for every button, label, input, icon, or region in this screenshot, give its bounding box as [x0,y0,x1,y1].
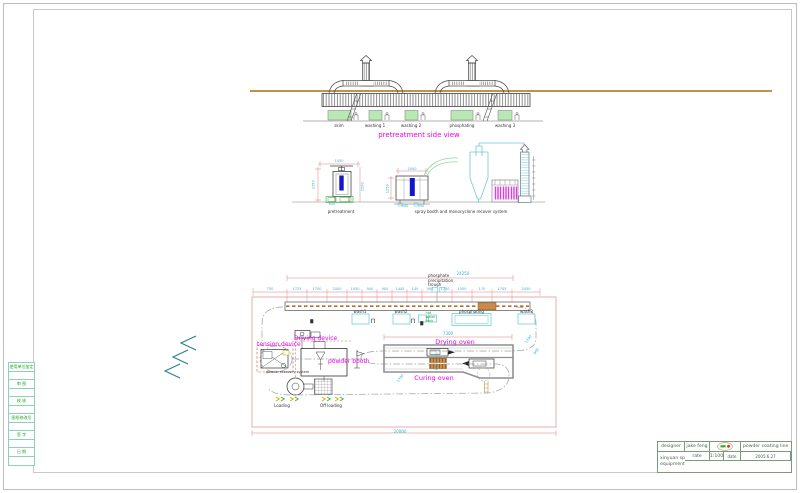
company-cell: xinyuan spraying equipment co;ltd [658,452,685,472]
rate-value-cell: 1:100 [710,452,724,461]
seg-dim-11: 1500 [458,288,467,292]
date-value-cell: 2005.6.27 [741,452,791,461]
designer-label-cell: designer [658,442,685,452]
flow-arrows [165,336,196,378]
plan-tank-wash3: wash3 [520,310,533,314]
seg-dim-12: 170 [479,288,486,292]
side-dim-650: 650 [436,351,439,357]
signature-strip: 使用单位鉴定 审 图 校 核 图纸修改号 签 字 日 期 [8,362,35,466]
label-driving-device: Driving device [294,336,337,342]
dim-right-top: 2000 [408,168,417,172]
plan-overall-dim-top: 24250 [457,272,470,276]
company-logo [717,442,733,451]
seg-dim-6: 900 [382,288,389,292]
dim-right-b2: 350 [418,205,425,209]
tank-label-skim: skim [334,124,343,128]
side-view-title: pretreatment side view [378,132,460,139]
seg-dim-0: 750 [267,288,274,292]
section-label-pretreatment: pretreatment [328,210,355,214]
drawing-canvas [0,0,800,493]
dim-right-left: 1250 [386,184,390,193]
exhaust-chimney [519,145,536,203]
designer-value-cell: jake feng [685,442,710,452]
strip-row-1: 使用单位鉴定 [9,363,34,372]
hot-water-line3: tank [426,320,434,324]
rate-label-cell: rate [685,452,710,461]
section-view-art [292,143,545,206]
filter-unit [492,180,518,202]
logo-cell [710,442,741,452]
seg-dim-14: 2050 [522,288,531,292]
label-powder-booth: powder booth [328,359,370,365]
label-tension-device: tension device [257,342,301,348]
dim-left-right: 2200 [361,182,365,191]
company-line2: equipment co;ltd [660,462,685,468]
seg-dim-3: 2000 [333,288,342,292]
plan-overall-dim-bottom: 20000 [394,430,407,434]
tank-label-washing2: washing 2 [401,124,421,128]
pretreatment-section [315,161,360,203]
seg-dim-9: 900 [427,288,434,292]
plan-tank-wash1: wash1 [354,310,367,314]
dim-left-height: 2350 [312,180,316,189]
label-off-loading: Off loading [320,404,342,408]
strip-row-5: 签 字 [9,431,34,440]
seg-dim-4: 1450 [351,288,360,292]
load-marks [276,397,343,401]
ovens [384,345,513,393]
seg-dim-2: 1700 [313,288,322,292]
plan-tank-phosphating: phosphating [459,310,484,314]
tunnel-body [322,94,530,107]
side-view-art [250,56,772,122]
label-curing-oven: Curing oven [414,375,453,382]
strip-row-2: 审 图 [9,380,34,389]
strip-row-3: 校 核 [9,397,34,406]
spray-booth-section [388,158,458,206]
seg-dim-8: 140 [412,288,419,292]
seg-dim-10: 1700 [441,288,450,292]
title-block: designer jake feng powder coating line r… [657,441,792,473]
exhaust-stack-1 [329,56,403,94]
plan-tank-wash2: wash2 [395,310,408,314]
seg-dim-7: 1445 [396,288,405,292]
trough-note-line3: trough [428,283,441,287]
plan-tanks [352,314,535,326]
plan-view-art [165,275,556,436]
tank-label-washing1: washing 1 [365,124,385,128]
tank-label-phosphating: phosphating [450,124,475,128]
section-label-spray-booth: spray booth and monocyclone recover syst… [415,210,508,214]
label-drying-oven: Drying oven [435,339,475,346]
powder-recovery [287,378,332,395]
tank-label-washing3: washing 3 [495,124,515,128]
strip-row-6: 日 期 [9,448,34,457]
oven-span-dim: 7300 [443,332,453,336]
seg-dim-13: 1745 [498,288,507,292]
strip-row-4: 图纸修改号 [9,414,34,423]
dim-left-bottom: 600 [329,203,336,207]
dim-left-top: 1450 [335,160,344,164]
side-dim-850: 850 [436,365,439,371]
date-label-cell: date [724,452,741,461]
label-powder-recovery: powder recovery system [266,371,309,375]
seg-dim-1: 1725 [293,288,302,292]
seg-dim-5: 900 [367,288,374,292]
exhaust-stack-2 [435,56,509,94]
label-loading: Loading [274,404,290,408]
drawing-sheet: skim washing 1 washing 2 phosphating was… [0,0,800,493]
dim-right-b1: 900 [402,205,409,209]
product-cell: powder coating line [741,442,791,452]
